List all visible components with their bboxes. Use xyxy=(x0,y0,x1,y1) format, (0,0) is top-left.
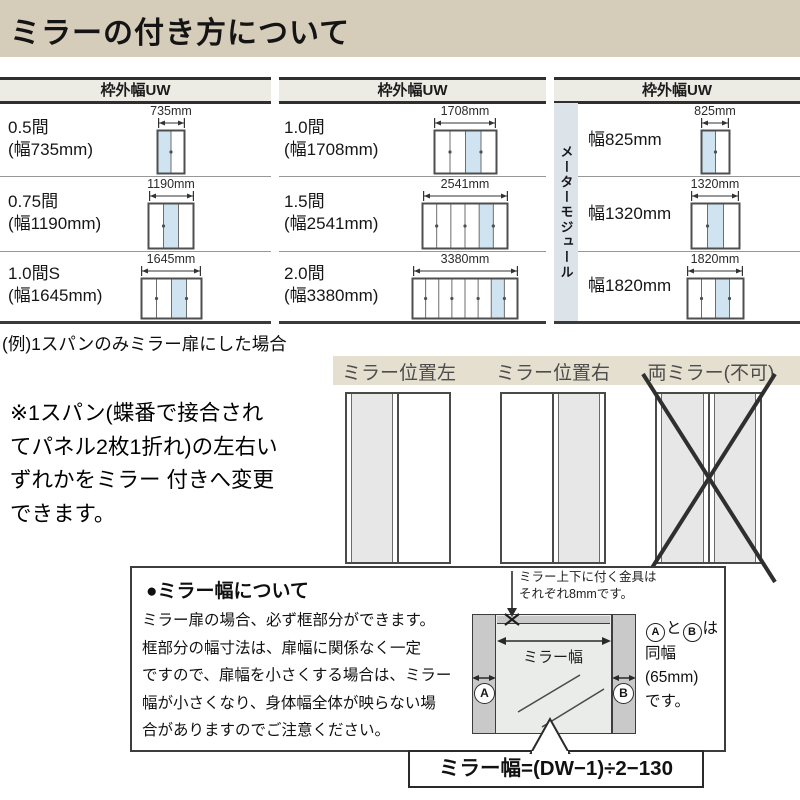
dimension-arrow-icon xyxy=(701,118,729,128)
example-caption: (例)1スパンのみミラー扉にした場合 xyxy=(2,331,287,356)
door-diagram xyxy=(700,129,731,175)
row-label: 1.5間(幅2541mm) xyxy=(284,191,378,235)
door-cell xyxy=(156,129,186,175)
stile-b-width-arrow-icon xyxy=(612,675,636,681)
door-diagram xyxy=(421,202,509,250)
panel-half-mirror xyxy=(347,394,397,562)
row-size-name: 2.0間 xyxy=(284,263,378,285)
row-size-width: (幅1708mm) xyxy=(284,139,378,161)
column-header: 枠外幅UW xyxy=(279,77,546,104)
door-cell xyxy=(140,277,203,320)
panel-half-plain xyxy=(502,394,552,562)
example-note: ※1スパン(蝶番で接合され てパネル2枚1折れ)の左右い ずれかをミラー 付きへ… xyxy=(10,397,355,531)
dimension-label: 825mm xyxy=(670,104,760,118)
label-mirror-right: ミラー位置右 xyxy=(492,358,614,385)
example-door-mirror-right xyxy=(500,392,606,564)
door-diagram xyxy=(690,202,741,250)
mirror-width-arrow-icon xyxy=(497,637,611,645)
dimension-label: 1320mm xyxy=(670,177,760,191)
door-cell xyxy=(421,202,509,250)
info-body-line: ミラー扉の場合、必ず框部分ができます。 xyxy=(142,607,451,635)
dimension-arrow xyxy=(691,191,739,201)
dimension-label: 1190mm xyxy=(126,177,216,191)
stile xyxy=(600,394,604,562)
door-cell xyxy=(700,129,731,175)
column-header: 枠外幅UW xyxy=(0,77,271,104)
meter-module-label: メーターモジュール xyxy=(557,145,576,280)
column-bottom-border xyxy=(279,321,546,324)
page-title: ミラーの付き方について xyxy=(10,8,350,52)
dimension-arrow-icon xyxy=(149,191,194,201)
example-door-mirror-left xyxy=(345,392,451,564)
label-mirror-left: ミラー位置左 xyxy=(338,358,460,385)
info-body-line: ですので、扉幅を小さくする場合は、ミラー xyxy=(142,662,451,690)
row-label: 1.0間(幅1708mm) xyxy=(284,117,378,161)
dimension-arrow-icon xyxy=(158,118,185,128)
row-label: 幅1820mm xyxy=(588,275,671,297)
door-cell xyxy=(686,277,745,320)
info-box-title: ●ミラー幅について xyxy=(146,576,309,603)
dimension-label: 3380mm xyxy=(420,252,510,266)
door-diagram xyxy=(411,277,519,320)
dimension-arrow-icon xyxy=(434,118,496,128)
row-label: 2.0間(幅3380mm) xyxy=(284,263,378,307)
row-size-width: (幅1190mm) xyxy=(8,213,101,235)
page: ミラーの付き方について 枠外幅UW0.5間(幅735mm)735mm0.75間(… xyxy=(0,0,800,800)
dimension-arrow xyxy=(434,118,496,128)
dimension-arrow xyxy=(423,191,508,201)
info-body-line: 幅が小さくなり、身体幅全体が映らない場 xyxy=(142,690,451,718)
note-line: できます。 xyxy=(10,498,355,532)
plain-panel xyxy=(399,394,449,562)
row-label: 幅825mm xyxy=(588,129,662,151)
dimension-arrow xyxy=(701,118,729,128)
dimension-arrow xyxy=(687,266,743,276)
dimension-arrow-icon xyxy=(141,266,201,276)
mirror-panel xyxy=(559,394,599,562)
door-diagram xyxy=(156,129,186,175)
door-cell xyxy=(433,129,498,175)
note-line: てパネル2枚1折れ)の左右い xyxy=(10,431,355,465)
door-diagram xyxy=(433,129,498,175)
stile-a-width-arrow-icon xyxy=(472,675,496,681)
note-line: ずれかをミラー 付きへ変更 xyxy=(10,464,355,498)
door-cell xyxy=(411,277,519,320)
row-size-name: 1.5間 xyxy=(284,191,378,213)
dimension-label: 735mm xyxy=(126,104,216,118)
dimension-arrow xyxy=(149,191,194,201)
column-bottom-border xyxy=(554,321,800,324)
dimension-label: 1708mm xyxy=(420,104,510,118)
door-cell xyxy=(147,202,195,250)
mirror-diagram-annotations xyxy=(460,565,710,750)
dimension-arrow-icon xyxy=(423,191,508,201)
panel-half-plain xyxy=(399,394,449,562)
row-label: 0.5間(幅735mm) xyxy=(8,117,93,161)
row-size-width: (幅735mm) xyxy=(8,139,93,161)
meter-module-strip: メーターモジュール xyxy=(554,103,578,321)
column-header: 枠外幅UW xyxy=(554,77,800,104)
info-body-line: 框部分の幅寸法は、扉幅に関係なく一定 xyxy=(142,635,451,663)
row-size-width: (幅3380mm) xyxy=(284,285,378,307)
mirror-panel xyxy=(352,394,392,562)
dimension-arrow xyxy=(141,266,201,276)
row-label: 1.0間S(幅1645mm) xyxy=(8,263,102,307)
row-size-name: 0.75間 xyxy=(8,191,101,213)
row-size-name: 1.0間 xyxy=(284,117,378,139)
plain-panel xyxy=(502,394,552,562)
row-size-width: (幅2541mm) xyxy=(284,213,378,235)
row-size-name: 1.0間S xyxy=(8,263,102,285)
info-box-body: ミラー扉の場合、必ず框部分ができます。 框部分の幅寸法は、扉幅に関係なく一定 で… xyxy=(142,607,451,745)
row-size-name: 0.5間 xyxy=(8,117,93,139)
row-size-width: (幅1645mm) xyxy=(8,285,102,307)
row-label: 幅1320mm xyxy=(588,203,671,225)
door-diagram xyxy=(147,202,195,250)
dimension-label: 1820mm xyxy=(670,252,760,266)
door-diagram xyxy=(686,277,745,320)
dimension-arrow xyxy=(158,118,185,128)
cross-x-icon xyxy=(633,372,785,584)
dimension-arrow-icon xyxy=(687,266,743,276)
dimension-label: 2541mm xyxy=(420,177,510,191)
dimension-label: 1645mm xyxy=(126,252,216,266)
column-bottom-border xyxy=(0,321,271,324)
info-body-line: 合がありますのでご注意ください。 xyxy=(142,717,451,745)
dimension-arrow-icon xyxy=(691,191,739,201)
down-arrow-icon xyxy=(507,571,517,617)
dimension-arrow xyxy=(413,266,518,276)
panel-half-mirror xyxy=(554,394,604,562)
door-diagram xyxy=(140,277,203,320)
dimension-arrow-icon xyxy=(413,266,518,276)
row-label: 0.75間(幅1190mm) xyxy=(8,191,101,235)
note-line: ※1スパン(蝶番で接合され xyxy=(10,397,355,431)
callout-tail-icon xyxy=(520,716,580,756)
door-cell xyxy=(690,202,741,250)
